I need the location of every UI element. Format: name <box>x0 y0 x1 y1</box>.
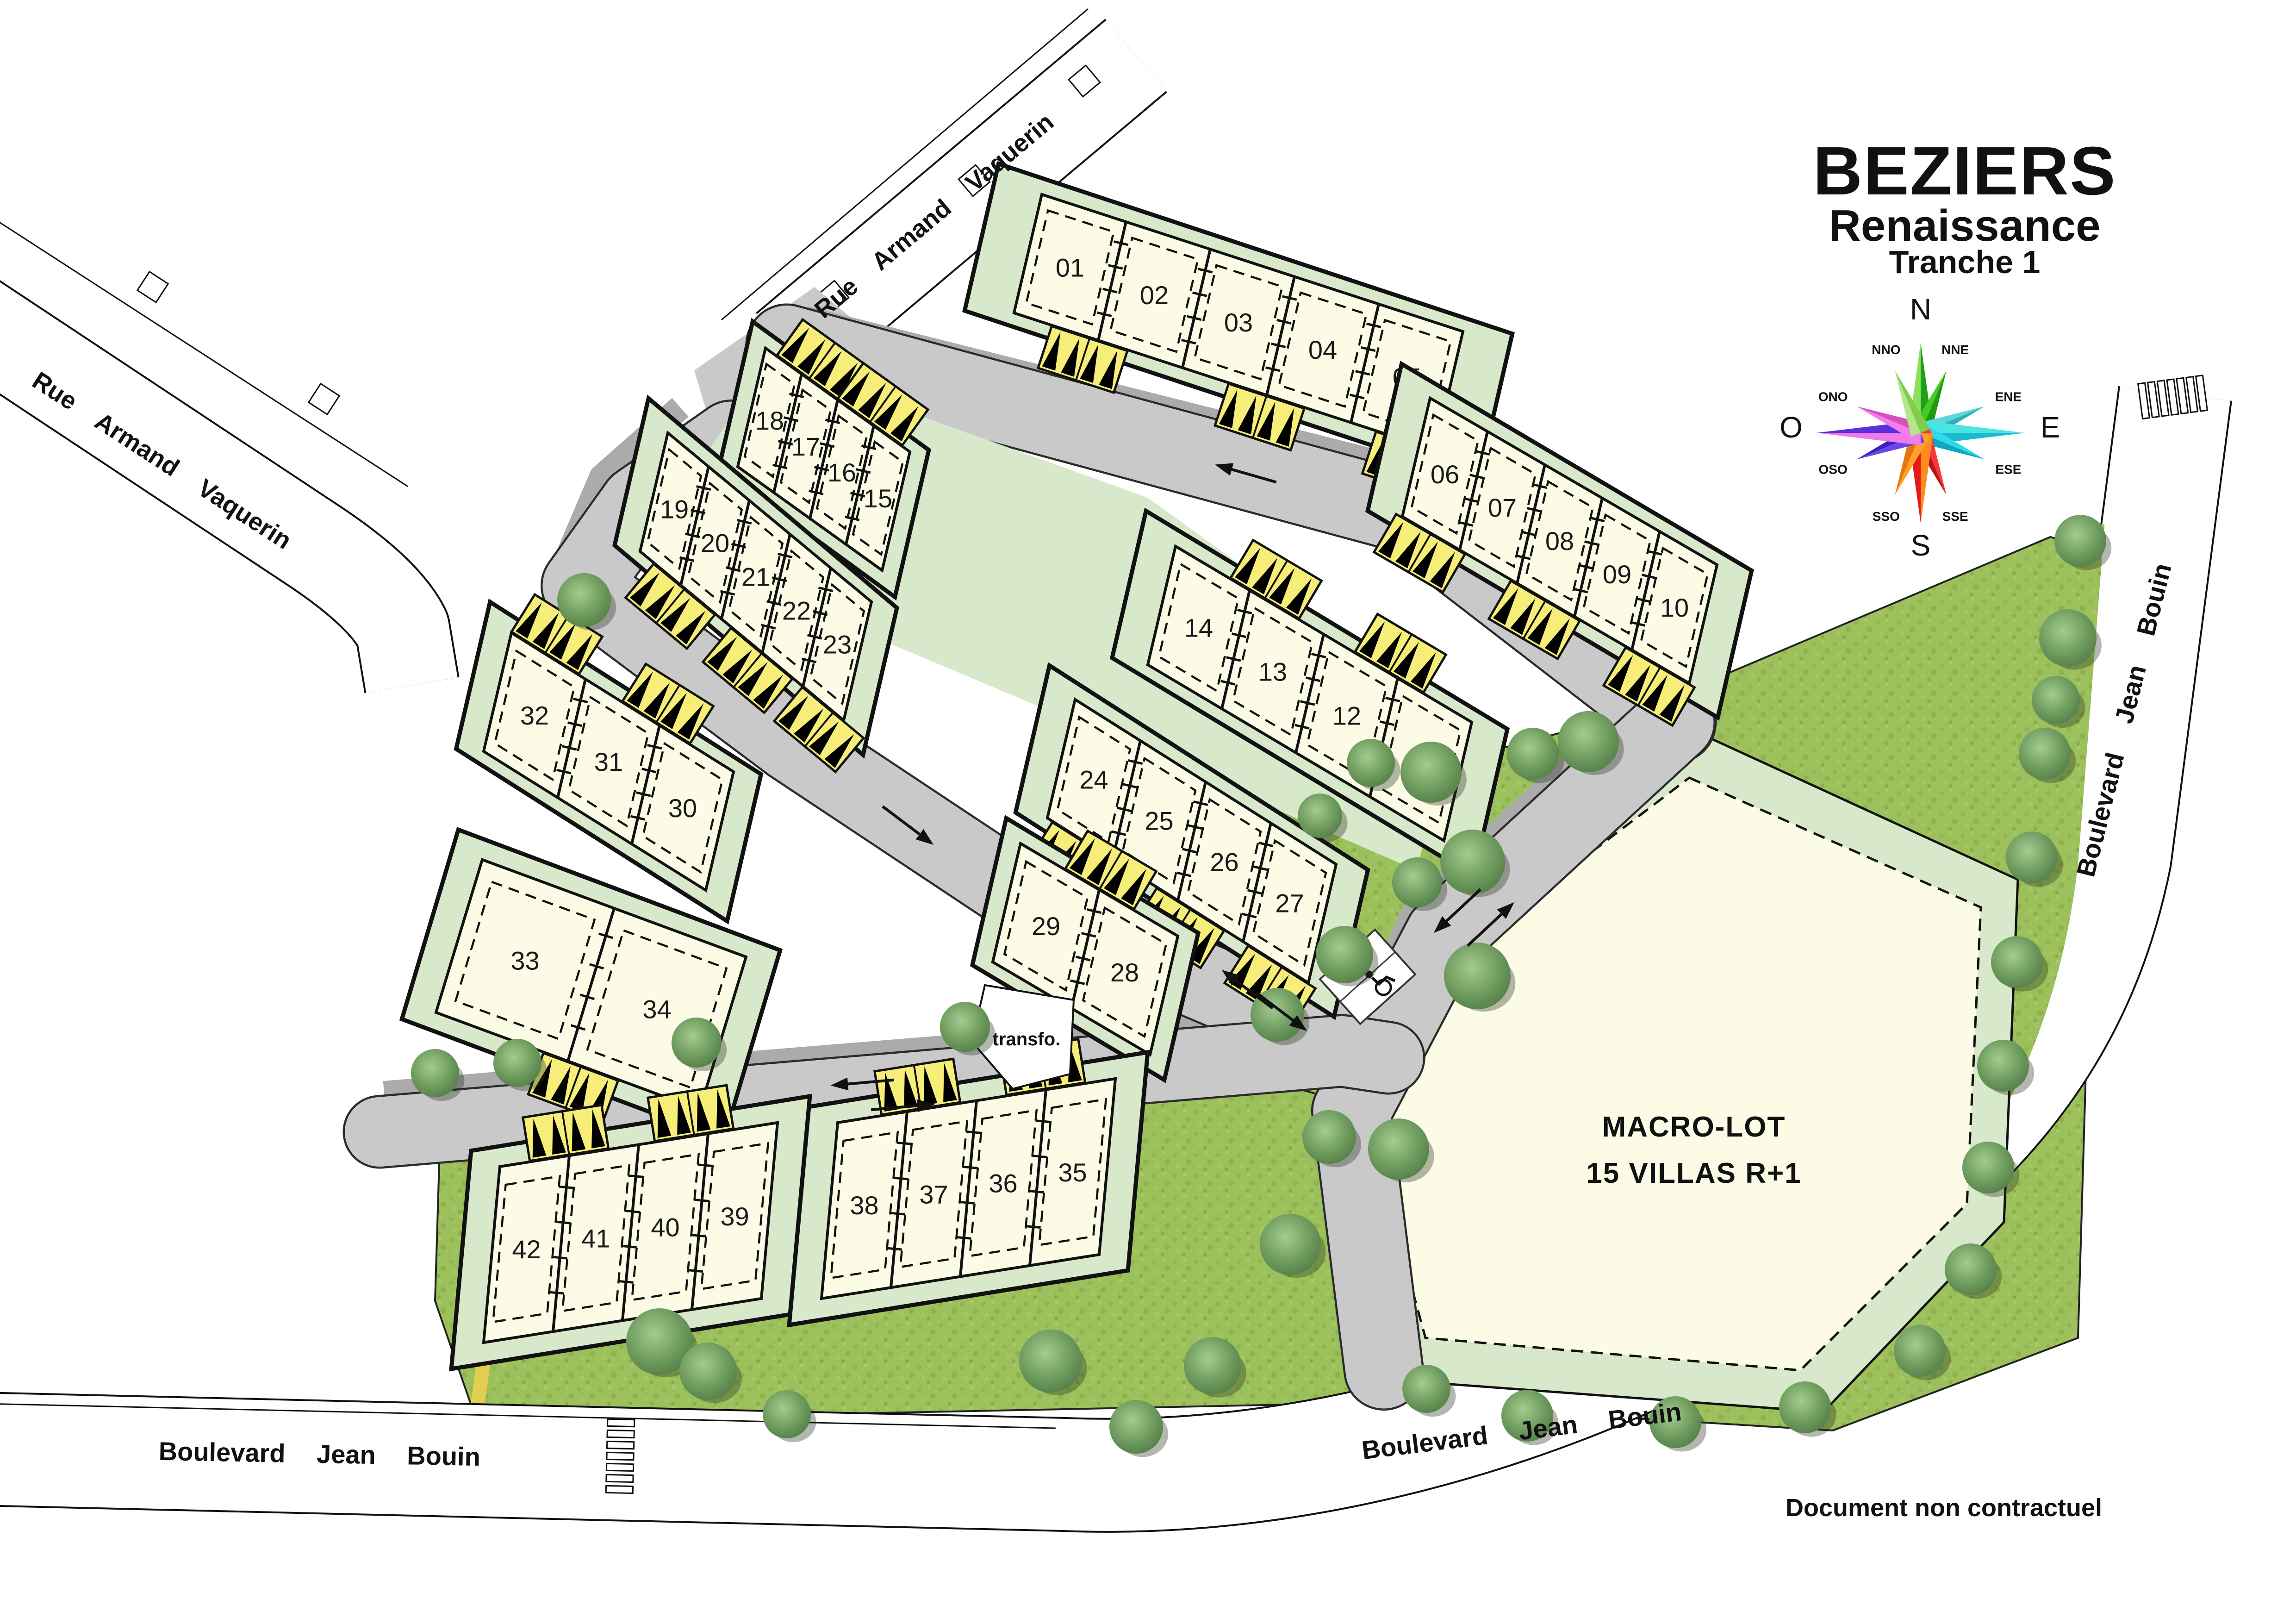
macro-lot-label-line2: 15 VILLAS R+1 <box>1586 1157 1801 1189</box>
lot-number-21: 21 <box>741 562 770 592</box>
compass-label-ENE: ENE <box>1995 390 2022 404</box>
plan-title-project: Renaissance <box>1829 201 2100 250</box>
lot-number-38: 38 <box>850 1191 878 1220</box>
lot-number-18: 18 <box>755 406 784 435</box>
street-notch <box>309 384 339 414</box>
lot-number-35: 35 <box>1058 1158 1087 1187</box>
compass-label-ESE: ESE <box>1995 462 2021 476</box>
lot-number-02: 02 <box>1140 281 1169 310</box>
lot-number-39: 39 <box>720 1202 749 1231</box>
compass-label-ONO: ONO <box>1818 390 1848 404</box>
compass-label-OSO: OSO <box>1818 462 1847 476</box>
lot-number-19: 19 <box>660 495 689 524</box>
disclaimer-note: Document non contractuel <box>1786 1494 2102 1522</box>
lot-number-37: 37 <box>919 1180 948 1209</box>
macro-lot-label-line1: MACRO-LOT <box>1602 1111 1786 1143</box>
lot-number-14: 14 <box>1184 613 1213 643</box>
compass-label-N: N <box>1910 293 1931 326</box>
lot-number-33: 33 <box>510 946 539 975</box>
lot-number-09: 09 <box>1603 560 1631 589</box>
lot-number-15: 15 <box>864 484 892 513</box>
compass-label-E: E <box>2041 411 2060 444</box>
lot-number-36: 36 <box>989 1169 1017 1198</box>
site-plan: 0102030405060708091018171615141312111920… <box>0 0 2296 1624</box>
compass-label-SSE: SSE <box>1942 509 1968 524</box>
compass-label-O: O <box>1780 411 1803 444</box>
street-notch <box>137 272 168 302</box>
lot-number-25: 25 <box>1145 806 1173 836</box>
lot-number-41: 41 <box>581 1224 610 1253</box>
lot-number-42: 42 <box>512 1235 541 1264</box>
lot-number-31: 31 <box>594 747 623 776</box>
lot-number-20: 20 <box>701 529 729 558</box>
compass-label-SSO: SSO <box>1873 509 1900 524</box>
lot-number-04: 04 <box>1308 335 1337 364</box>
lot-number-06: 06 <box>1431 460 1459 489</box>
compass-label-S: S <box>1911 529 1931 562</box>
lot-number-07: 07 <box>1488 493 1517 522</box>
lot-number-30: 30 <box>668 793 697 823</box>
lot-number-27: 27 <box>1275 889 1304 918</box>
crosswalk-bottom <box>606 1419 635 1493</box>
transformer-label: transfo. <box>993 1029 1061 1049</box>
compass-rose: NNNEENEEESESSESSSOOSOOONONNO <box>1780 293 2060 562</box>
plan-title-city: BEZIERS <box>1813 133 2116 209</box>
lot-number-22: 22 <box>782 596 811 625</box>
lot-number-16: 16 <box>828 458 856 487</box>
compass-label-NNE: NNE <box>1941 343 1969 357</box>
lot-number-28: 28 <box>1110 958 1139 987</box>
lot-number-40: 40 <box>651 1213 679 1242</box>
lot-number-32: 32 <box>520 701 549 730</box>
street-label-boulevard-jean-bouin-left: Boulevard Jean Bouin <box>158 1437 480 1471</box>
lot-number-34: 34 <box>642 995 671 1024</box>
lot-number-08: 08 <box>1545 526 1574 556</box>
plan-title-phase: Tranche 1 <box>1889 244 2041 280</box>
lot-number-13: 13 <box>1258 657 1287 687</box>
lot-number-10: 10 <box>1660 593 1689 622</box>
compass-label-NNO: NNO <box>1872 343 1900 357</box>
lot-number-26: 26 <box>1210 848 1238 877</box>
lot-number-03: 03 <box>1224 308 1253 337</box>
lot-number-01: 01 <box>1056 253 1084 282</box>
lot-number-29: 29 <box>1032 912 1060 941</box>
lot-number-24: 24 <box>1079 765 1108 794</box>
lot-number-12: 12 <box>1332 701 1361 731</box>
lot-number-17: 17 <box>791 432 820 461</box>
lot-number-23: 23 <box>823 630 852 659</box>
